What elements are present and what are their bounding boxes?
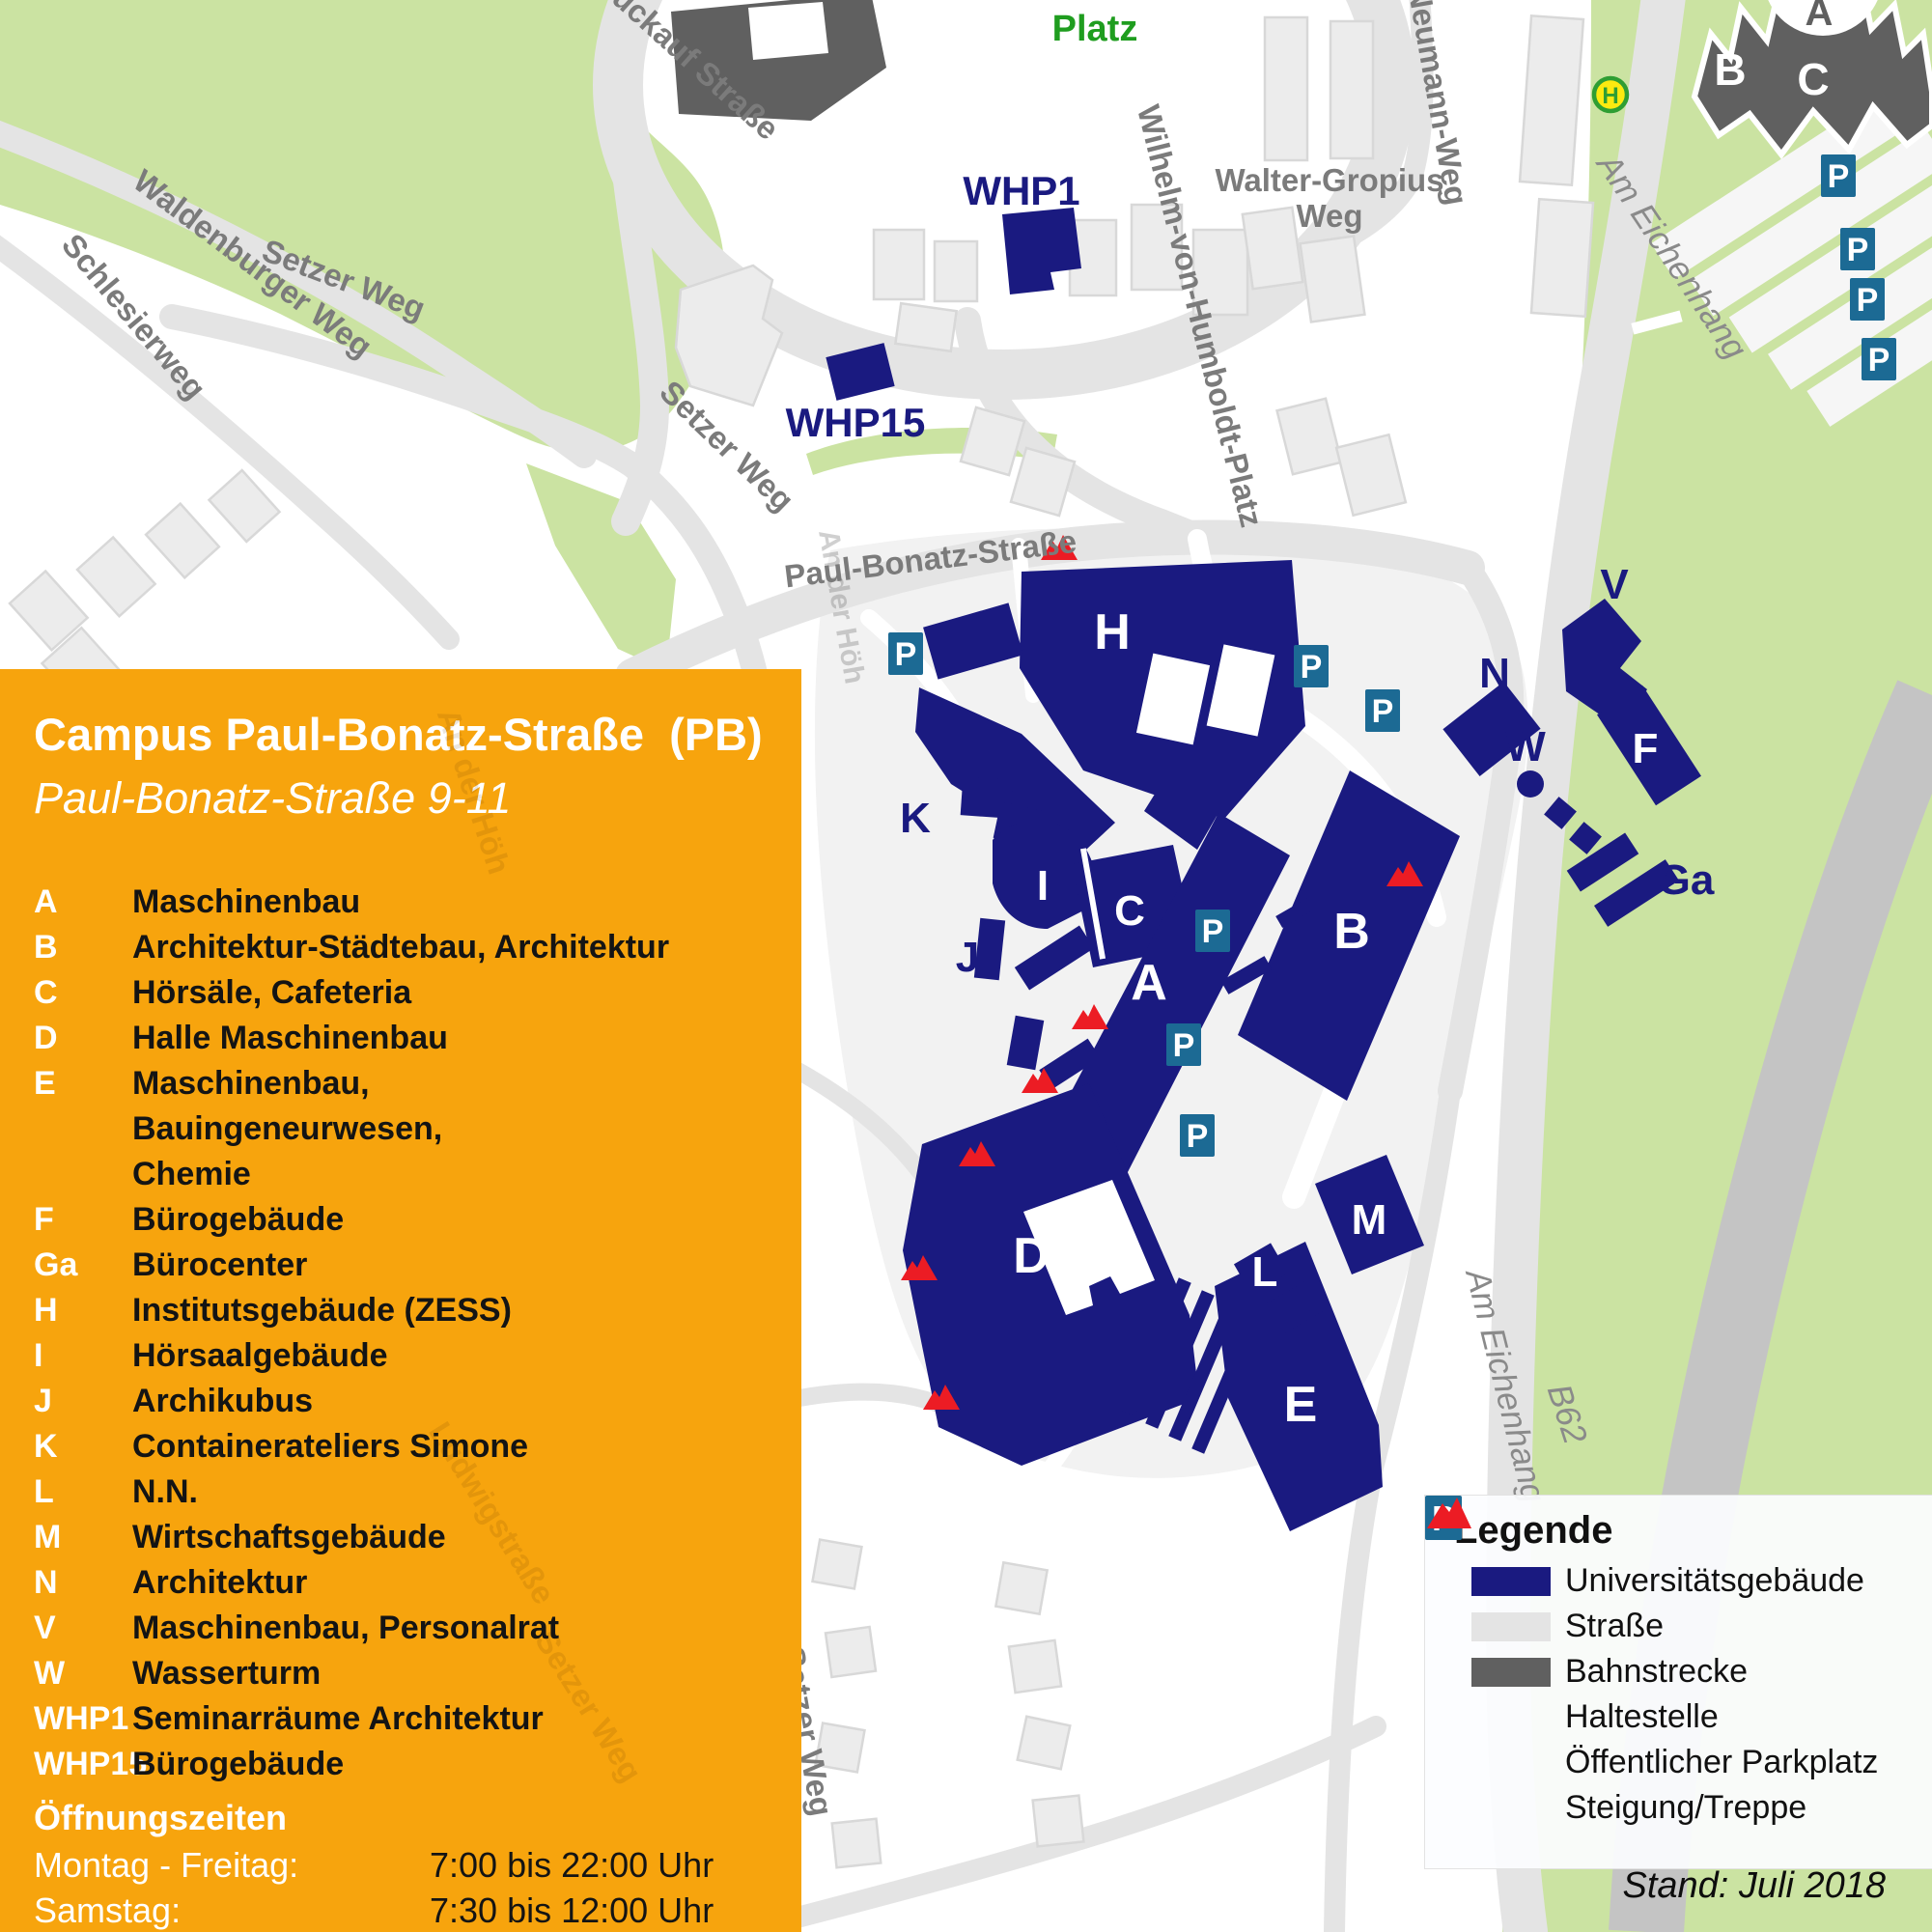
building-whp1-label: WHP1 (963, 168, 1079, 213)
building-code: A (34, 880, 132, 925)
legend-label: Straße (1565, 1608, 1932, 1645)
building-e-label: E (1284, 1377, 1318, 1433)
parking-icon: P (1821, 154, 1856, 197)
parking-icon: P (1862, 338, 1896, 380)
info-panel: Campus Paul-Bonatz-Straße (PB) Paul-Bona… (0, 669, 801, 1932)
building-code: W (34, 1651, 132, 1696)
building-l-label: L (1252, 1248, 1278, 1296)
hours-value: 7:00 bis 22:00 Uhr (430, 1842, 801, 1888)
building-code: B (34, 925, 132, 970)
legend-label: Öffentlicher Parkplatz (1565, 1744, 1932, 1781)
list-item: GaBürocenter (0, 1243, 801, 1288)
hours-label: Montag - Freitag: (34, 1842, 430, 1888)
page-subtitle: Paul-Bonatz-Straße 9-11 (34, 773, 511, 824)
list-item: DHalle Maschinenbau (0, 1016, 801, 1061)
legend-item: H Haltestelle (1425, 1694, 1932, 1740)
list-item: JArchikubus (0, 1379, 801, 1424)
university-building-swatch (1471, 1567, 1551, 1596)
parking-icon: P (1195, 910, 1230, 952)
building-code: I (34, 1333, 132, 1379)
list-item: VMaschinenbau, Personalrat (0, 1606, 801, 1651)
building-name: Institutsgebäude (ZESS) (132, 1288, 673, 1333)
building-b-label: B (1333, 904, 1370, 960)
platz-label: Platz (1052, 9, 1138, 49)
svg-text:P: P (1372, 693, 1394, 730)
legend-item: Universitätsgebäude (1425, 1558, 1932, 1604)
building-code: Ga (34, 1243, 132, 1288)
svg-text:P: P (1187, 1118, 1209, 1155)
legend-item: Steigung/Treppe (1425, 1785, 1932, 1831)
hours-row: Montag - Freitag: 7:00 bis 22:00 Uhr (0, 1842, 801, 1888)
bus-stop-icon: H (1594, 78, 1627, 111)
svg-text:P: P (1847, 232, 1869, 268)
building-n-label: N (1479, 650, 1510, 697)
list-item: FBürogebäude (0, 1197, 801, 1243)
legend-item: P Öffentlicher Parkplatz (1425, 1740, 1932, 1785)
parking-icon: P (888, 632, 923, 675)
street-label: Walter-Gropius (1215, 162, 1443, 198)
parking-icon: P (1365, 689, 1400, 732)
legend-item: Straße (1425, 1604, 1932, 1649)
building-h-label: H (1094, 604, 1131, 660)
parking-icon: P (1850, 278, 1885, 321)
building-name: Wirtschaftsgebäude (132, 1515, 673, 1560)
list-item: LN.N. (0, 1470, 801, 1515)
building-name: N.N. (132, 1470, 673, 1515)
building-code: WHP1 (34, 1696, 132, 1742)
hours-label: Samstag: (34, 1888, 430, 1932)
building-code: H (34, 1288, 132, 1333)
adjacent-a-label: A (1806, 0, 1834, 34)
building-code: E (34, 1061, 132, 1197)
list-item: KContainerateliers Simone (0, 1424, 801, 1470)
legend-label: Universitätsgebäude (1565, 1562, 1932, 1600)
list-item: WHP15Bürogebäude (0, 1742, 801, 1787)
svg-text:P: P (1828, 158, 1850, 195)
adjacent-b-label: B (1714, 44, 1746, 95)
building-name: Architektur-Städtebau, Architektur (132, 925, 673, 970)
stairs-icon (1425, 1496, 1473, 1530)
building-i-label: I (1037, 862, 1049, 910)
building-name: Maschinenbau, Bauingeneurwesen, Chemie (132, 1061, 673, 1197)
building-name: Wasserturm (132, 1651, 673, 1696)
building-name: Bürogebäude (132, 1197, 673, 1243)
opening-hours: Öffnungszeiten Montag - Freitag: 7:00 bi… (0, 1794, 801, 1932)
legend-label: Haltestelle (1565, 1698, 1932, 1736)
svg-text:H: H (1602, 83, 1618, 109)
building-code: V (34, 1606, 132, 1651)
building-code: L (34, 1470, 132, 1515)
street-label: Weg (1296, 198, 1362, 234)
building-name: Bürocenter (132, 1243, 673, 1288)
parking-icon: P (1166, 1023, 1201, 1066)
list-item: AMaschinenbau (0, 880, 801, 925)
building-f-label: F (1633, 725, 1659, 772)
building-name: Maschinenbau, Personalrat (132, 1606, 673, 1651)
building-code: N (34, 1560, 132, 1606)
building-name: Hörsäle, Cafeteria (132, 970, 673, 1016)
building-name: Maschinenbau (132, 880, 673, 925)
legend-label: Bahnstrecke (1565, 1653, 1932, 1691)
building-w-label: W (1505, 723, 1546, 770)
building-name: Bürogebäude (132, 1742, 673, 1787)
building-m-label: M (1352, 1196, 1387, 1244)
building-code: F (34, 1197, 132, 1243)
building-name: Seminarräume Architektur (132, 1696, 673, 1742)
building-ga-label: Ga (1658, 856, 1715, 904)
opening-hours-heading: Öffnungszeiten (0, 1794, 801, 1842)
list-item: CHörsäle, Cafeteria (0, 970, 801, 1016)
building-list: AMaschinenbau BArchitektur-Städtebau, Ar… (0, 880, 801, 1787)
list-item: EMaschinenbau, Bauingeneurwesen, Chemie (0, 1061, 801, 1197)
page-title: Campus Paul-Bonatz-Straße (PB) (34, 708, 787, 761)
building-name: Hörsaalgebäude (132, 1333, 673, 1379)
building-w-watertower (1517, 770, 1544, 798)
legend: Legende Universitätsgebäude Straße Bahns… (1424, 1495, 1932, 1869)
railway-swatch (1471, 1658, 1551, 1687)
legend-label: Steigung/Treppe (1565, 1789, 1932, 1827)
svg-text:P: P (1868, 342, 1890, 378)
hours-row: Samstag: 7:30 bis 12:00 Uhr (0, 1888, 801, 1932)
building-code: K (34, 1424, 132, 1470)
svg-text:P: P (1202, 913, 1224, 950)
svg-text:P: P (895, 636, 917, 673)
list-item: WWasserturm (0, 1651, 801, 1696)
list-item: IHörsaalgebäude (0, 1333, 801, 1379)
legend-title: Legende (1454, 1509, 1932, 1553)
map-date-stamp: Stand: Juli 2018 (1622, 1865, 1886, 1907)
parking-icon: P (1180, 1114, 1215, 1157)
parking-icon: P (1294, 645, 1329, 687)
hours-value: 7:30 bis 12:00 Uhr (430, 1888, 801, 1932)
building-whp15-label: WHP15 (786, 400, 926, 445)
list-item: HInstitutsgebäude (ZESS) (0, 1288, 801, 1333)
svg-text:P: P (1301, 649, 1323, 686)
svg-text:P: P (1173, 1027, 1195, 1064)
building-name: Architektur (132, 1560, 673, 1606)
list-item: WHP1Seminarräume Architektur (0, 1696, 801, 1742)
building-name: Halle Maschinenbau (132, 1016, 673, 1061)
building-c-label: C (1114, 887, 1145, 935)
building-code: C (34, 970, 132, 1016)
building-a-label: A (1131, 955, 1167, 1011)
building-j-label: J (956, 934, 979, 981)
building-code: J (34, 1379, 132, 1424)
list-item: MWirtschaftsgebäude (0, 1515, 801, 1560)
building-code: WHP15 (34, 1742, 132, 1787)
building-v-label: V (1600, 561, 1629, 608)
legend-item: Bahnstrecke (1425, 1649, 1932, 1694)
building-code: M (34, 1515, 132, 1560)
building-name: Containerateliers Simone (132, 1424, 673, 1470)
list-item: NArchitektur (0, 1560, 801, 1606)
svg-text:P: P (1857, 282, 1879, 319)
building-k-label: K (900, 795, 931, 842)
building-name: Archikubus (132, 1379, 673, 1424)
building-d-label: D (1013, 1228, 1050, 1284)
parking-icon: P (1840, 228, 1875, 270)
street-swatch (1471, 1612, 1551, 1641)
building-code: D (34, 1016, 132, 1061)
adjacent-c-label: C (1797, 54, 1829, 104)
list-item: BArchitektur-Städtebau, Architektur (0, 925, 801, 970)
campus-map-screenshot: P P P P P P P P P P H Waldenburger Weg S… (0, 0, 1932, 1932)
